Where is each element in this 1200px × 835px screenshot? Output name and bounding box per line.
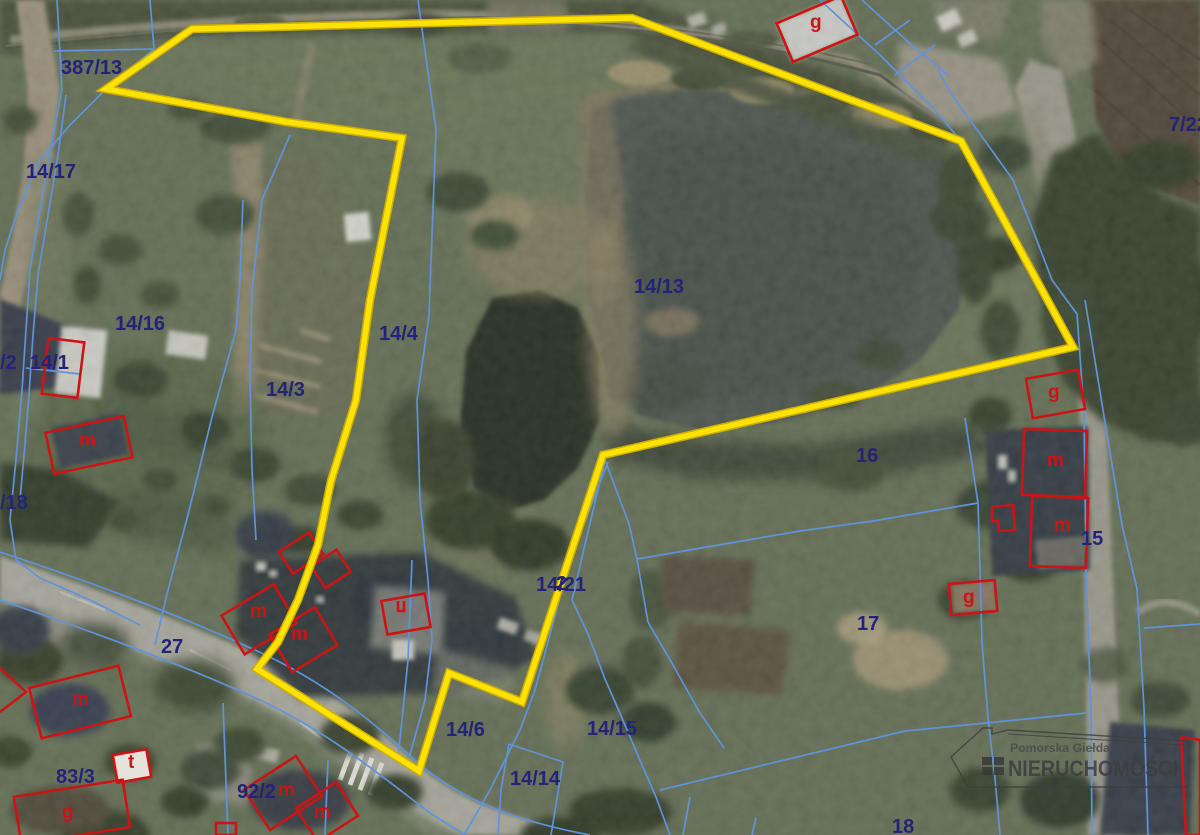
svg-text:14/14: 14/14 xyxy=(510,768,561,790)
svg-text:14/3: 14/3 xyxy=(266,379,305,401)
svg-text:g: g xyxy=(1048,382,1060,403)
svg-text:g: g xyxy=(810,12,822,33)
svg-text:m: m xyxy=(278,780,295,801)
svg-text:/18: /18 xyxy=(0,492,28,514)
svg-text:14/13: 14/13 xyxy=(634,276,684,298)
svg-text:m: m xyxy=(72,689,89,710)
svg-text:18: 18 xyxy=(892,816,914,835)
svg-text:15: 15 xyxy=(1081,528,1103,550)
svg-text:83/3: 83/3 xyxy=(56,766,95,788)
svg-text:m: m xyxy=(1054,515,1071,536)
svg-text:14/16: 14/16 xyxy=(115,313,165,335)
svg-text:14/1: 14/1 xyxy=(30,352,69,374)
svg-text:14/17: 14/17 xyxy=(26,161,76,183)
svg-text:m: m xyxy=(1047,450,1064,471)
svg-text:Pomorska Giełda: Pomorska Giełda xyxy=(1010,741,1110,755)
svg-text:387/13: 387/13 xyxy=(61,57,122,79)
svg-text:t: t xyxy=(128,752,135,773)
svg-text:92/2: 92/2 xyxy=(237,781,276,803)
svg-text:g: g xyxy=(963,587,975,608)
svg-text:27: 27 xyxy=(161,636,183,658)
svg-text:16: 16 xyxy=(856,445,878,467)
svg-text:2: 2 xyxy=(556,573,567,595)
svg-text:m: m xyxy=(79,430,96,451)
svg-text:m: m xyxy=(314,802,331,823)
svg-text:14/4: 14/4 xyxy=(379,323,419,345)
svg-text:m: m xyxy=(250,601,267,622)
svg-text:/2: /2 xyxy=(0,352,17,374)
svg-text:NIERUCHOMOŚCI: NIERUCHOMOŚCI xyxy=(1008,756,1178,781)
svg-text:7/22: 7/22 xyxy=(1169,114,1200,136)
svg-text:g: g xyxy=(62,802,74,823)
svg-text:17: 17 xyxy=(857,613,879,635)
svg-text:14/6: 14/6 xyxy=(446,719,485,741)
svg-text:m: m xyxy=(291,624,308,645)
svg-text:14/15: 14/15 xyxy=(587,718,637,740)
